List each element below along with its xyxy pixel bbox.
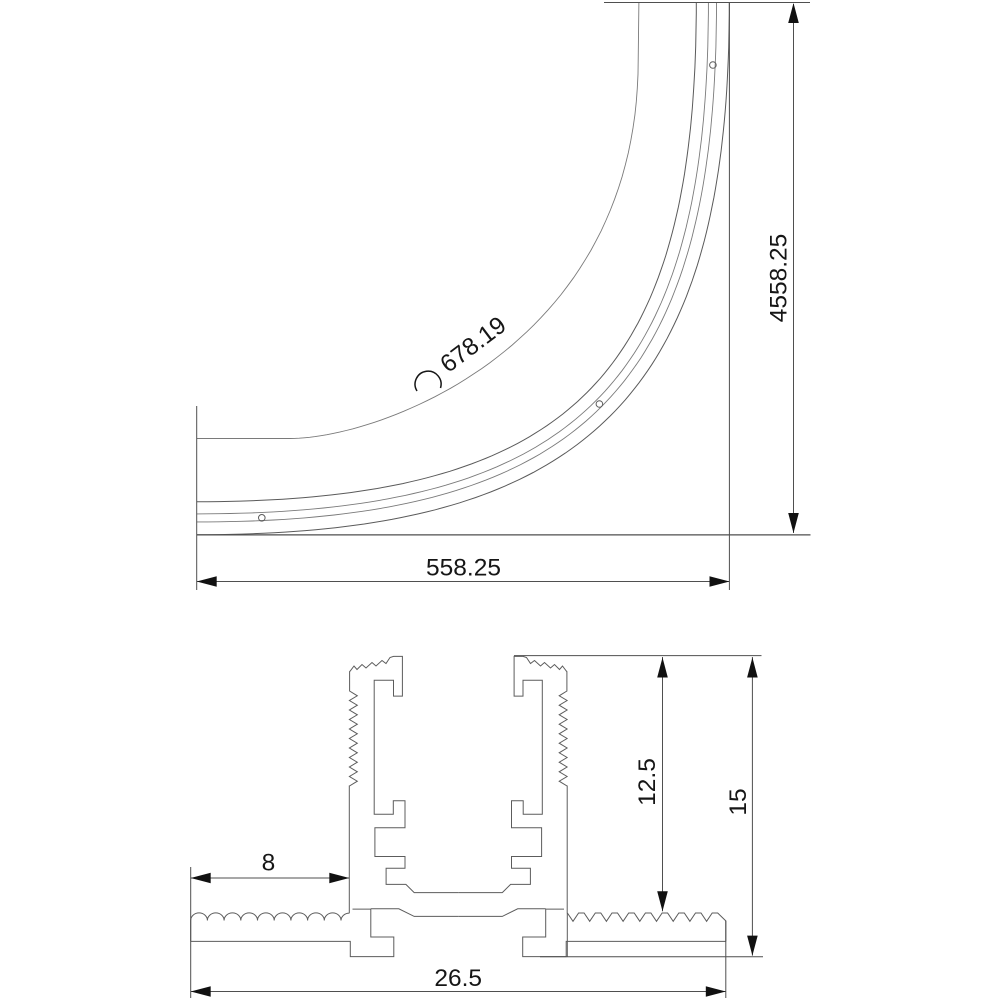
svg-text:4558.25: 4558.25 <box>766 234 793 323</box>
svg-text:558.25: 558.25 <box>426 555 501 582</box>
svg-text:15: 15 <box>725 788 752 815</box>
svg-text:12.5: 12.5 <box>634 758 661 806</box>
svg-text:26.5: 26.5 <box>434 965 482 992</box>
svg-text:8: 8 <box>262 850 276 877</box>
